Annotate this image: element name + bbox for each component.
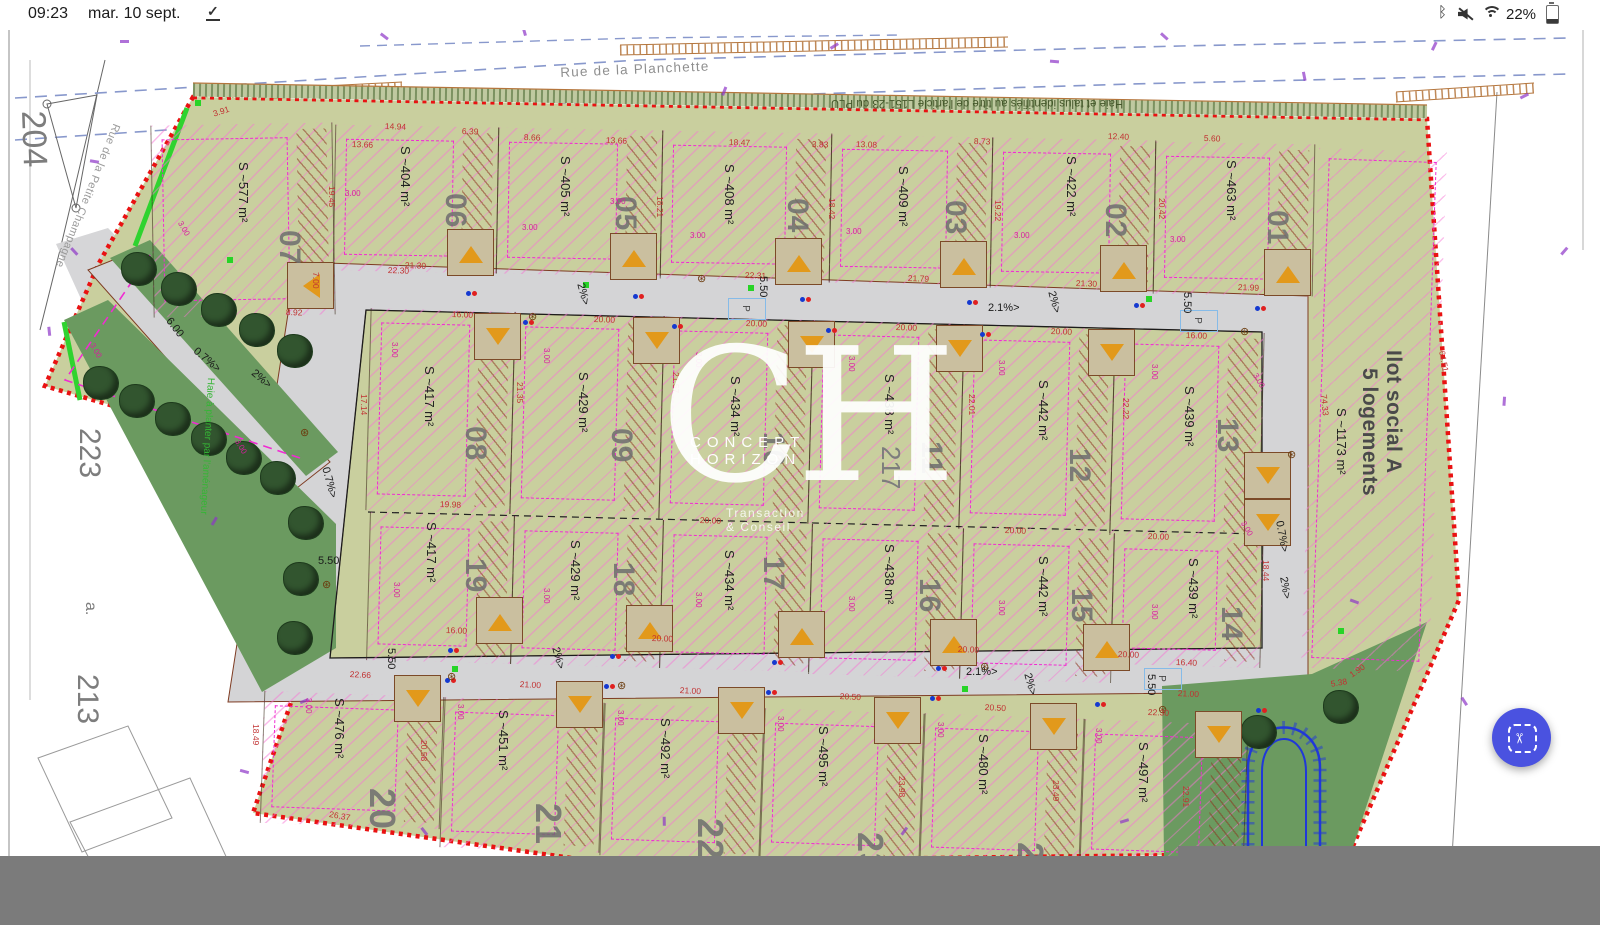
dimension-label: 19.45 (328, 186, 337, 207)
tree (83, 366, 119, 400)
road-slope-label: 5.50 (1145, 674, 1156, 695)
garage-direction-icon (1095, 641, 1119, 658)
lot-number: 11 (916, 441, 946, 475)
dimension-label: 16.40 (1176, 658, 1198, 667)
dimension-label: 20.00 (1051, 327, 1073, 336)
clock: 09:23 (28, 5, 68, 23)
lot-area-label: S ~463 m² (1225, 160, 1238, 220)
garage-direction-icon (568, 696, 592, 713)
utility-dots (1095, 694, 1106, 712)
dimension-label: 8.92 (286, 308, 303, 317)
wifi-icon (1482, 6, 1500, 19)
lot-number: 01 (1262, 210, 1292, 245)
dimension-label: 20.00 (594, 315, 616, 324)
dimension-label: 21.79 (908, 274, 930, 283)
tick-mark (1050, 60, 1059, 63)
dimension-label: 18.47 (729, 138, 751, 147)
utility-dots (610, 646, 621, 664)
garage-direction-icon (952, 258, 976, 275)
dimension-label: 13.66 (352, 140, 374, 149)
garage-direction-icon (1112, 262, 1136, 279)
dimension-label: 8.66 (524, 133, 541, 142)
survey-symbol: ⊛ (300, 428, 309, 439)
lot-area-label: S ~492 m² (659, 718, 672, 778)
utility-dots (980, 324, 991, 342)
lot-area-label: S ~434 m² (729, 376, 742, 436)
tick-mark (663, 817, 666, 826)
dimension-label: 16.00 (446, 626, 468, 635)
dimension-label: 21.30 (1076, 279, 1098, 288)
lot-area-label: S ~417 m² (425, 522, 438, 582)
lot-area-label: S ~476 m² (333, 698, 346, 758)
garage-marker (1088, 329, 1135, 376)
tree (161, 272, 197, 306)
garage-direction-icon (1100, 344, 1124, 361)
utility-dots (930, 688, 941, 706)
parking-label: P (1192, 317, 1203, 324)
road-slope-label: 2%> (249, 368, 273, 391)
lot-area-label: S ~442 m² (1037, 380, 1050, 440)
garage-direction-icon (1042, 718, 1066, 735)
dimension-label: 19.22 (994, 200, 1003, 221)
survey-symbol: ⊛ (528, 312, 537, 323)
marker-dot (962, 686, 968, 692)
lot-area-label: S ~422 m² (1065, 156, 1078, 216)
garage-direction-icon (787, 255, 811, 272)
tree (288, 506, 324, 540)
lot-area-label: S ~497 m² (1137, 742, 1150, 802)
dimension-label: 20.50 (840, 692, 862, 702)
utility-dots (826, 320, 837, 338)
dimension-label: 20.50 (985, 703, 1007, 713)
lot-area-label: S ~495 m² (817, 726, 830, 786)
dimension-label: 13.66 (606, 136, 628, 145)
lot-number: 16 (914, 578, 944, 613)
garage-direction-icon (948, 340, 972, 357)
survey-symbol: ⊛ (1287, 450, 1296, 461)
dimension-label: 18.44 (1262, 560, 1271, 581)
dimension-label: 3.00 (936, 722, 944, 738)
lot-number: 13 (1212, 418, 1242, 453)
survey-symbol: ⊛ (1240, 327, 1249, 338)
survey-symbol: ⊛ (697, 274, 706, 285)
dimension-label: 20.42 (1158, 198, 1167, 219)
dimension-label: 3.91 (212, 105, 230, 118)
building-envelope (1001, 152, 1111, 274)
android-screenshot: 07S ~577 m²06S ~404 m²05S ~405 m²04S ~40… (0, 0, 1600, 925)
dimension-label: 3.00 (846, 228, 862, 236)
dimension-label: 20.00 (896, 323, 918, 332)
dimension-label: 3.00 (847, 356, 855, 372)
lot-area-label: S ~439 m² (1187, 558, 1200, 618)
tick-mark (120, 40, 129, 43)
street-name: Rue de la Planchette (560, 59, 710, 79)
garage-marker (778, 611, 825, 658)
tick-mark (1520, 93, 1529, 99)
social-block-title: Ilot social A (1383, 350, 1404, 474)
dimension-label: 5.38 (1330, 677, 1348, 688)
dimension-label: 3.00 (690, 232, 706, 240)
utility-dots (1256, 700, 1267, 718)
tick-mark (240, 769, 249, 774)
dimension-label: 22.66 (350, 670, 372, 680)
dimension-label: 22.30 (1148, 708, 1170, 717)
dimension-label: 3.00 (610, 198, 626, 206)
lot-area-label: S ~408 m² (723, 164, 736, 224)
garage-direction-icon (486, 328, 510, 345)
utility-dots (936, 658, 947, 676)
plan-annotations: 07S ~577 m²06S ~404 m²05S ~405 m²04S ~40… (0, 0, 1600, 925)
lot-number: 02 (1100, 203, 1130, 238)
lot-number: 22 (692, 818, 728, 860)
tick-mark (380, 33, 389, 40)
dimension-label: 3.00 (1170, 236, 1186, 244)
dimension-label: 6.39 (462, 127, 479, 136)
dimension-label: 74.33 (1320, 394, 1330, 416)
lot-area-label: S ~442 m² (1037, 556, 1050, 616)
dimension-label: 20.00 (1118, 650, 1140, 659)
building-envelope (970, 543, 1069, 665)
dimension-label: 20.00 (1148, 532, 1170, 541)
road-slope-label: 0.7%> (319, 466, 338, 499)
lot-area-label: S ~405 m² (559, 156, 572, 216)
dimension-label: 3.00 (1014, 232, 1030, 240)
garage-marker (626, 605, 673, 652)
dimension-label: 13.08 (856, 140, 878, 149)
lot-number: 18 (608, 562, 638, 597)
dimension-label: 23.49 (1052, 780, 1061, 801)
lot-area-label: S ~438 m² (883, 374, 896, 434)
lot-number: 17 (758, 556, 788, 591)
dimension-label: 20.00 (652, 634, 674, 643)
dimension-label: 3.00 (847, 596, 855, 612)
dimension-label: 3.00 (456, 704, 464, 720)
lot-number: 14 (1216, 606, 1246, 641)
road-slope-label: 6.00 (163, 316, 185, 340)
parcel-number: 204 (16, 110, 52, 168)
footer-bar-step (1178, 846, 1600, 925)
lot-number: 07 (274, 230, 304, 265)
dimension-label: 21.00 (680, 686, 702, 696)
dimension-label: 3.00 (776, 716, 784, 732)
building-envelope (1164, 156, 1270, 280)
lot-number: 10 (758, 432, 788, 467)
screenshot-crop-button[interactable]: ✂ (1492, 708, 1551, 767)
lot-area-label: S ~417 m² (423, 366, 436, 426)
utility-dots (633, 286, 644, 304)
road-slope-label: 5.50 (318, 556, 339, 567)
road-slope-label: 2%> (1277, 576, 1292, 600)
dimension-label: 16.00 (1186, 331, 1208, 340)
garage-marker (874, 697, 921, 744)
tick-mark (211, 517, 218, 526)
road-slope-label: 0.7%> (191, 346, 222, 375)
marker-dot (1338, 628, 1344, 634)
dimension-label: 3.00 (88, 342, 103, 359)
dimension-label: 3.00 (997, 600, 1005, 616)
date: mar. 10 sept. (88, 5, 181, 23)
garage-marker (474, 313, 521, 360)
lot-number: 15 (1066, 588, 1096, 623)
dimension-label: 21.35 (516, 382, 525, 403)
road-slope-label: 2%> (1045, 290, 1061, 314)
garage-direction-icon (406, 690, 430, 707)
dimension-label: 21.00 (520, 680, 542, 690)
utility-dots (967, 292, 978, 310)
dimension-label: 7.00 (312, 272, 321, 289)
tick-mark (1302, 72, 1306, 81)
utility-dots (604, 676, 615, 694)
battery-percent: 22% (1506, 6, 1536, 23)
dimension-label: 17.14 (360, 394, 369, 415)
tree (260, 461, 296, 495)
garage-marker (718, 687, 765, 734)
road-slope-label: 5.50 (1181, 292, 1192, 313)
tree (277, 621, 313, 655)
tree (1241, 715, 1277, 749)
tick-mark (1503, 397, 1506, 406)
dimension-label: 3.00 (390, 342, 398, 358)
utility-dots (772, 652, 783, 670)
lot-area-label: S ~429 m² (569, 540, 582, 600)
dimension-label: 3.00 (997, 360, 1005, 376)
survey-symbol: ⊛ (447, 672, 456, 683)
dimension-label: 3.00 (522, 224, 538, 232)
garage-marker (940, 241, 987, 288)
tree (119, 384, 155, 418)
scissors-icon: ✂ (1510, 733, 1527, 745)
garage-hatch-band (1224, 543, 1257, 662)
dimension-label: 22.01 (968, 394, 977, 415)
battery-icon (1546, 5, 1559, 24)
hedge-note: Haie à planter par l'aménageur (198, 377, 215, 514)
site-plan-viewer[interactable]: 07S ~577 m²06S ~404 m²05S ~405 m²04S ~40… (0, 0, 1600, 925)
dimension-label: 3.00 (1094, 728, 1102, 744)
survey-symbol: ⊛ (617, 681, 626, 692)
road-slope-label: 5.50 (757, 276, 768, 297)
street-name: Rue de la Petite Champagne (53, 122, 121, 269)
garage-marker (1083, 624, 1130, 671)
dimension-label: 21.00 (1178, 689, 1200, 699)
bluetooth-icon: ᛒ (1438, 4, 1447, 21)
status-bar: 09:23 mar. 10 sept. ✓ ᛒ 22% (0, 0, 1600, 30)
garage-direction-icon (488, 614, 512, 631)
dimension-label: 20.00 (700, 516, 722, 525)
marker-dot (195, 100, 201, 106)
utility-dots (800, 289, 811, 307)
building-envelope (1122, 548, 1219, 650)
lot-number: 19 (460, 558, 490, 593)
marker-dot (227, 257, 233, 263)
mute-icon (1458, 7, 1474, 21)
road-slope-label: 5.50 (385, 648, 396, 669)
parking-label: P (1156, 675, 1167, 682)
garage-marker (936, 325, 983, 372)
lot-area-label: S ~438 m² (883, 544, 896, 604)
dimension-label: 3.00 (542, 348, 550, 364)
dimension-label: 8.73 (974, 137, 991, 146)
dimension-label: 3.00 (1150, 604, 1158, 620)
garage-marker (1100, 245, 1147, 292)
marker-dot (1146, 296, 1152, 302)
garage-marker (1264, 249, 1311, 296)
lot-number: 20 (364, 788, 400, 830)
lot-area-label: S ~434 m² (723, 550, 736, 610)
tree (283, 562, 319, 596)
parking-box: P (728, 298, 766, 320)
tree (277, 334, 313, 368)
garage-marker (447, 229, 494, 276)
lot-area-label: S ~439 m² (1183, 386, 1196, 446)
parcel-number: a. (82, 602, 98, 615)
lot-number: 08 (460, 426, 490, 461)
dimension-label: 20.00 (958, 645, 980, 654)
dimension-label: 18.42 (828, 198, 837, 219)
lot-area-label: S ~404 m² (399, 146, 412, 206)
dimension-label: 21.57 (672, 372, 681, 393)
dimension-label: 21.30 (405, 261, 427, 270)
dimension-label: 3.00 (1150, 364, 1158, 380)
lot-area-label: S ~577 m² (237, 162, 250, 222)
dimension-label: 19.98 (440, 500, 462, 509)
garage-direction-icon (800, 336, 824, 353)
tree (239, 313, 275, 347)
lot-area-label: S ~429 m² (577, 372, 590, 432)
building-envelope (840, 149, 948, 269)
dimension-label: 12.40 (1108, 132, 1130, 141)
dimension-label: 3.00 (542, 588, 550, 604)
lot-area-label: S ~409 m² (897, 166, 910, 226)
garage-direction-icon (1256, 467, 1280, 484)
building-envelope (671, 534, 768, 654)
utility-dots (1255, 298, 1266, 316)
tick-mark (830, 43, 839, 50)
dimension-label: 3.00 (694, 592, 702, 608)
dimension-label: 16.00 (452, 310, 474, 319)
garage-direction-icon (790, 628, 814, 645)
utility-dots (672, 316, 683, 334)
dimension-label: 22.91 (1182, 786, 1191, 807)
tick-mark (1561, 247, 1569, 255)
tick-mark (1160, 32, 1168, 40)
tick-mark (1461, 697, 1468, 706)
tree (1323, 690, 1359, 724)
utility-dots (766, 682, 777, 700)
garage-marker (1195, 711, 1242, 758)
tick-mark (1431, 42, 1437, 51)
dimension-label: 18.49 (252, 724, 261, 745)
building-envelope (670, 330, 768, 505)
lot-number: 03 (940, 200, 970, 235)
lot-area-label: S ~480 m² (977, 734, 990, 794)
tick-mark (722, 87, 728, 96)
lot-number: 04 (782, 198, 812, 233)
utility-dots (1134, 295, 1145, 313)
building-envelope (970, 339, 1071, 515)
parcel-number: 223 (74, 428, 104, 478)
dimension-label: 3.00 (304, 698, 312, 714)
garage-direction-icon (459, 246, 483, 263)
survey-symbol: ⊛ (322, 580, 331, 591)
dimension-label: 5.60 (1204, 134, 1221, 143)
dimension-label: 3.00 (694, 352, 702, 368)
garage-marker (610, 233, 657, 280)
garage-marker (394, 675, 441, 722)
lot-number: 21 (530, 803, 566, 845)
social-block-area: S ~1173 m² (1335, 408, 1348, 475)
garage-direction-icon (645, 332, 669, 349)
tick-mark (48, 327, 51, 336)
utility-dots (448, 640, 459, 658)
dimension-label: 3.83 (812, 140, 829, 149)
download-done-icon: ✓ (206, 4, 220, 21)
lot-number: 06 (440, 193, 470, 228)
garage-marker (1030, 703, 1077, 750)
garage-marker (1244, 452, 1291, 499)
garage-marker (556, 681, 603, 728)
parcel-number: 217 (878, 446, 904, 489)
building-envelope (819, 538, 918, 660)
lot-area-label: S ~451 m² (497, 710, 510, 770)
dimension-label: 23.98 (898, 776, 907, 797)
dimension-label: 3.00 (392, 582, 400, 598)
dimension-label: 3.00 (345, 190, 361, 198)
building-envelope (521, 326, 619, 500)
building-envelope (1121, 343, 1220, 521)
garage-direction-icon (1207, 726, 1231, 743)
tree (201, 293, 237, 327)
plu-boundary-note: Haie et talus identifiés au titre de l'a… (703, 97, 1251, 109)
garage-direction-icon (622, 250, 646, 267)
garage-direction-icon (886, 712, 910, 729)
tree (121, 252, 157, 286)
lot-number: 09 (606, 428, 636, 463)
lot-number: 12 (1064, 448, 1094, 483)
dimension-label: 18.21 (656, 196, 665, 217)
dimension-label: 22.22 (1122, 398, 1131, 419)
marker-dot (748, 285, 754, 291)
social-block-subtitle: 5 logements (1359, 368, 1380, 496)
garage-marker (476, 597, 523, 644)
dimension-label: 3.00 (616, 710, 624, 726)
road-slope-label: 2.1%> (988, 303, 1020, 314)
dimension-label: 21.99 (1238, 283, 1260, 292)
garage-direction-icon (730, 702, 754, 719)
tree (155, 402, 191, 436)
parcel-number: 213 (72, 674, 102, 724)
dimension-label: 20.58 (420, 740, 429, 761)
garage-marker (775, 238, 822, 285)
dimension-label: 20.00 (1005, 526, 1027, 535)
utility-dots (466, 283, 477, 301)
road-slope-label: 2.1%> (966, 667, 998, 678)
parking-label: P (740, 305, 751, 312)
dimension-label: 64.51 (1438, 350, 1450, 372)
dimension-label: 14.94 (385, 122, 407, 131)
garage-direction-icon (1276, 266, 1300, 283)
dimension-label: 20.00 (746, 319, 768, 328)
